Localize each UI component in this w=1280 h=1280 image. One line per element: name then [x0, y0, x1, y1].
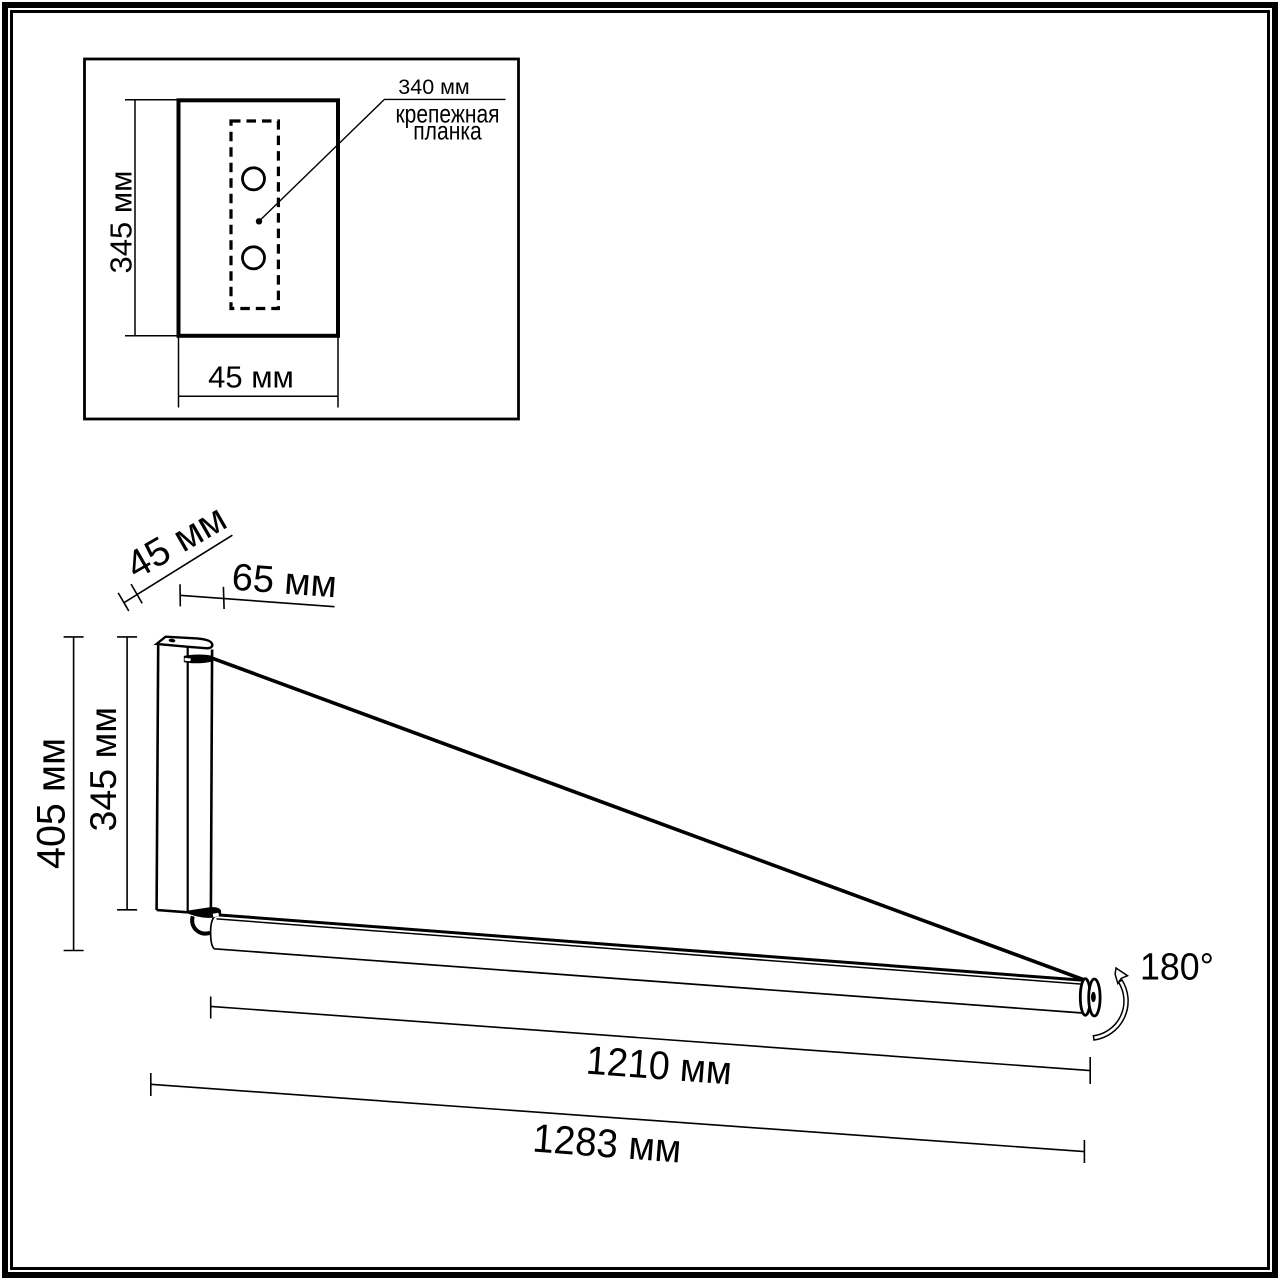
svg-text:345 мм: 345 мм — [82, 707, 124, 832]
svg-text:45 мм: 45 мм — [208, 360, 294, 395]
svg-text:65 мм: 65 мм — [230, 557, 338, 607]
svg-text:340 мм: 340 мм — [398, 75, 469, 99]
svg-text:180°: 180° — [1140, 947, 1214, 989]
svg-text:планка: планка — [413, 116, 482, 146]
svg-text:405 мм: 405 мм — [30, 738, 74, 869]
svg-text:345 мм: 345 мм — [104, 171, 139, 274]
